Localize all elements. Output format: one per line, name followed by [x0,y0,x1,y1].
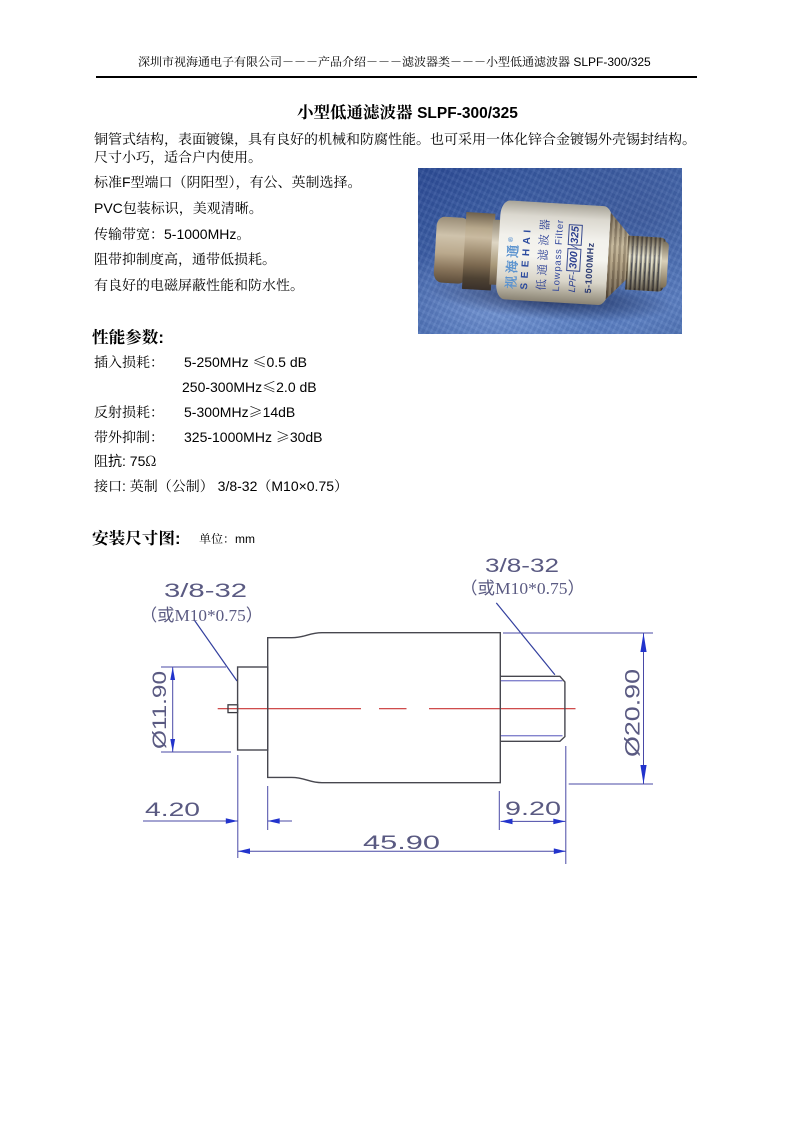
svg-text:9.20: 9.20 [505,799,561,820]
svg-text:3/8-32: 3/8-32 [164,581,247,602]
svg-text:4.20: 4.20 [145,800,200,821]
svg-text:Ø20.90: Ø20.90 [622,669,645,757]
svg-text:Ø11.90: Ø11.90 [150,671,171,749]
svg-text:（或M10*0.75）: （或M10*0.75） [140,601,263,626]
svg-text:（或M10*0.75）: （或M10*0.75） [460,574,585,599]
